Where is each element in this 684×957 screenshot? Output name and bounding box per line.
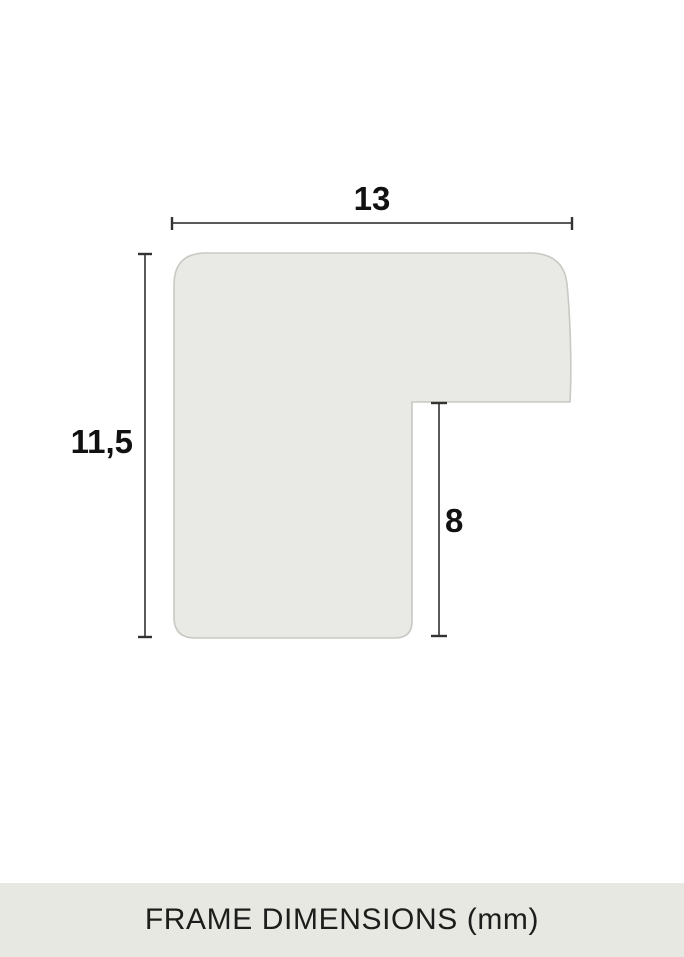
dimension-label-height: 11,5 (36, 425, 133, 459)
caption-text: FRAME DIMENSIONS (mm) (145, 903, 539, 937)
dimension-line-height (138, 254, 152, 637)
frame-profile-shape (174, 253, 571, 638)
profile-drawing: 13 11,5 8 (0, 0, 684, 883)
dimension-label-width: 13 (172, 182, 572, 216)
frame-dimension-diagram: 13 11,5 8 FRAME DIMENSIONS (mm) (0, 0, 684, 957)
caption-bar: FRAME DIMENSIONS (mm) (0, 883, 684, 957)
dimension-line-width (172, 217, 572, 230)
dimension-label-depth: 8 (445, 504, 463, 538)
